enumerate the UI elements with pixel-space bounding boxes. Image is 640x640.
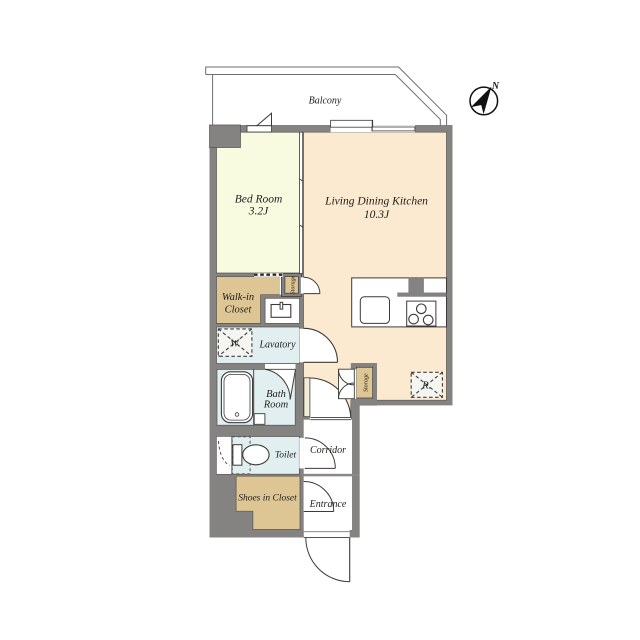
svg-text:N: N bbox=[491, 81, 500, 92]
svg-text:3.2J: 3.2J bbox=[248, 205, 269, 217]
svg-text:W.: W. bbox=[230, 339, 240, 350]
svg-text:Storage: Storage bbox=[364, 373, 370, 392]
svg-text:Room: Room bbox=[263, 399, 289, 410]
svg-text:Living Dining Kitchen: Living Dining Kitchen bbox=[324, 196, 428, 208]
svg-text:Lavatory: Lavatory bbox=[258, 340, 296, 351]
svg-text:Closet: Closet bbox=[225, 305, 253, 316]
svg-text:Shoes in Closet: Shoes in Closet bbox=[238, 494, 297, 504]
svg-text:Balcony: Balcony bbox=[309, 95, 342, 106]
svg-text:Bed Room: Bed Room bbox=[235, 193, 283, 205]
svg-text:Entrance: Entrance bbox=[309, 499, 347, 510]
svg-text:R.: R. bbox=[421, 381, 431, 392]
svg-text:Storage: Storage bbox=[291, 275, 297, 294]
svg-text:Toilet: Toilet bbox=[275, 451, 297, 461]
svg-text:Bath: Bath bbox=[266, 389, 286, 400]
svg-text:10.3J: 10.3J bbox=[364, 209, 390, 221]
svg-text:Walk-in: Walk-in bbox=[222, 292, 254, 303]
svg-text:Corridor: Corridor bbox=[310, 445, 346, 456]
